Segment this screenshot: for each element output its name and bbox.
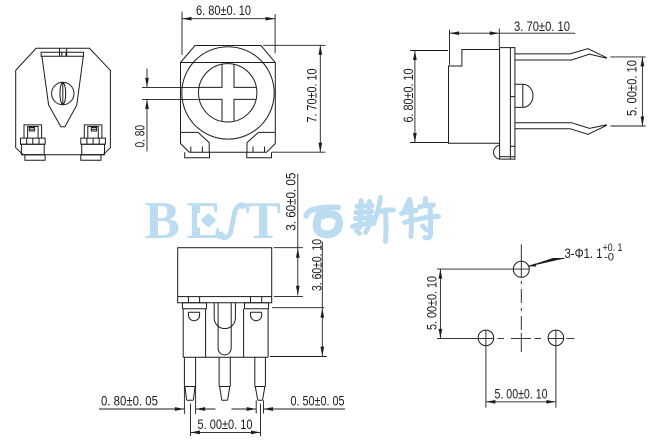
svg-text:B: B (145, 192, 180, 250)
svg-text:7. 70±0. 10: 7. 70±0. 10 (304, 68, 320, 122)
svg-text:3. 70±0. 10: 3. 70±0. 10 (514, 18, 570, 34)
svg-text:5. 00±0. 10: 5. 00±0. 10 (624, 60, 640, 116)
svg-text:3-Φ1. 1: 3-Φ1. 1 (565, 245, 603, 261)
svg-text:0. 80±0. 05: 0. 80±0. 05 (101, 393, 158, 409)
svg-text:6. 80±0. 10: 6. 80±0. 10 (196, 2, 251, 18)
svg-text:5. 00±0. 10: 5. 00±0. 10 (495, 386, 548, 402)
svg-text:5. 00±0. 10: 5. 00±0. 10 (424, 276, 440, 330)
svg-text:6. 80±0. 10: 6. 80±0. 10 (400, 68, 416, 122)
svg-text:3. 60±0. 05: 3. 60±0. 05 (283, 173, 299, 231)
svg-text:T: T (246, 192, 281, 250)
svg-text:5. 00±0. 10: 5. 00±0. 10 (198, 416, 253, 432)
svg-text:-0: -0 (604, 252, 614, 264)
svg-text:3. 60±0. 10: 3. 60±0. 10 (308, 239, 324, 291)
svg-text:0. 50±0. 05: 0. 50±0. 05 (291, 393, 345, 409)
svg-text:0. 80: 0. 80 (131, 125, 147, 148)
